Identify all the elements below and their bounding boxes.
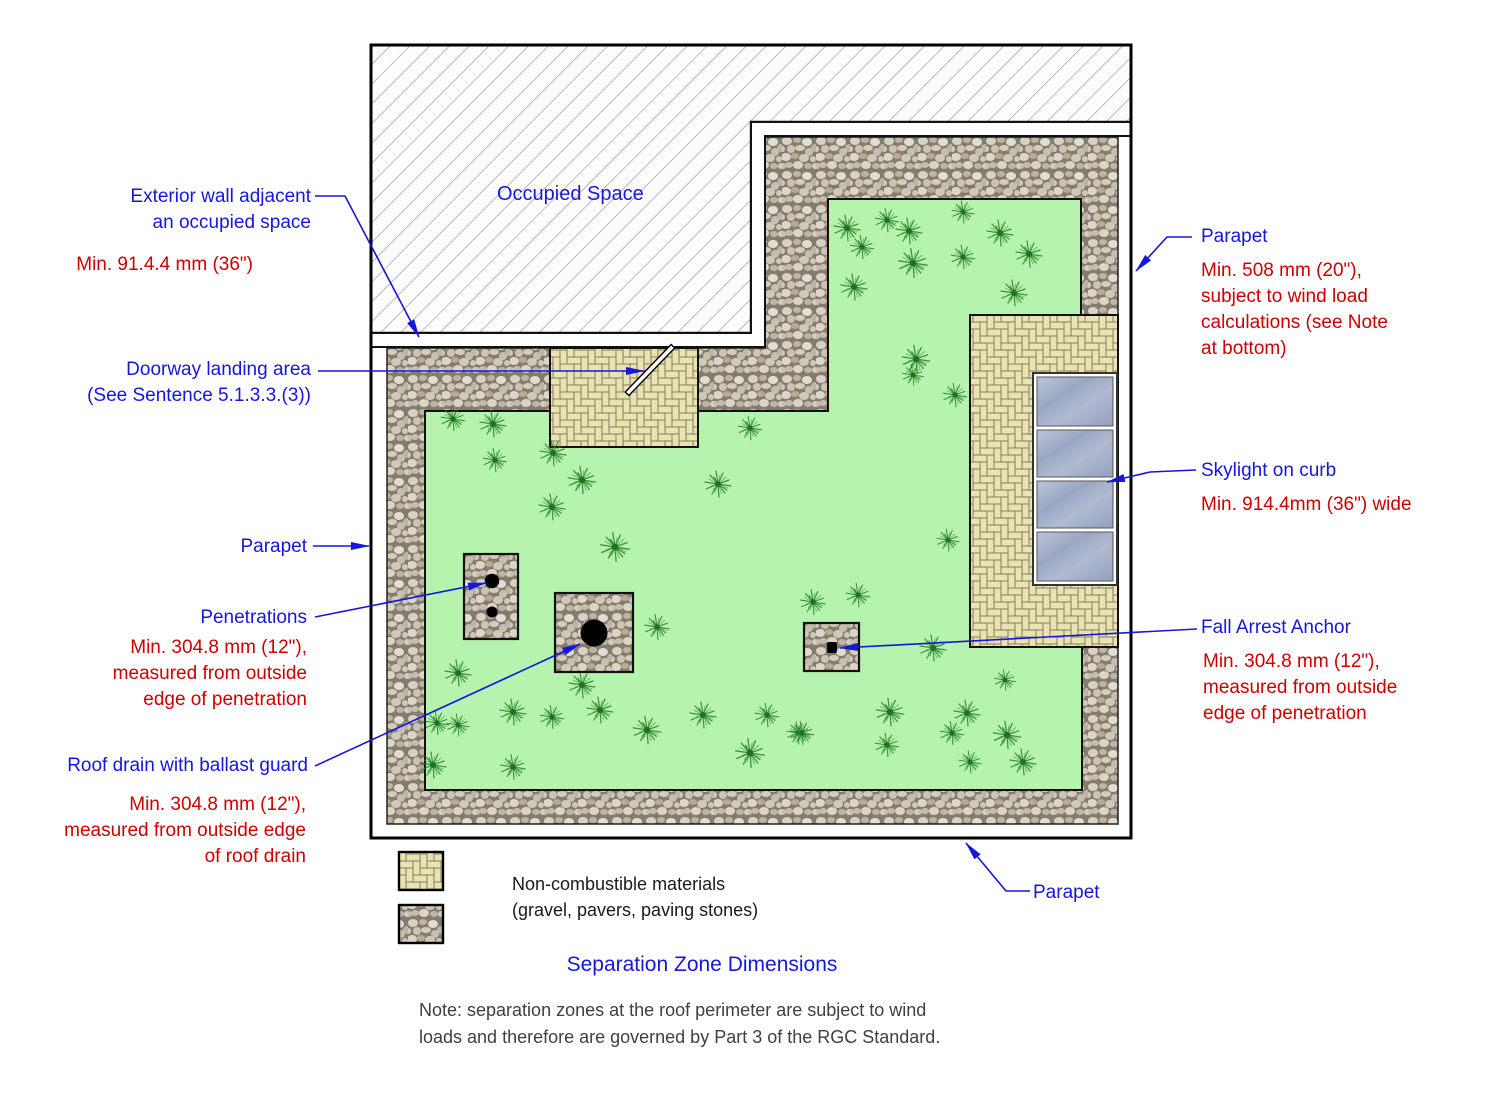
dim-fall-arrest-anchor: Min. 304.8 mm (12"), measured from outsi… [1203,649,1397,727]
roof-drain [581,620,608,647]
leader-parapet-bottom [966,843,1030,891]
diagram-title: Separation Zone Dimensions [402,952,1002,978]
skylight-pane [1037,481,1113,528]
skylight [1033,373,1117,585]
legend-line2: (gravel, pavers, paving stones) [512,900,758,920]
label-penetrations: Penetrations [200,605,307,631]
label-skylight: Skylight on curb [1201,458,1336,484]
roof-drain-box [555,593,633,672]
legend-text: Non-combustible materials(gravel, pavers… [512,871,758,923]
dim-exterior-wall: Min. 91.4.4 mm (36") [76,252,253,278]
label-parapet-right: Parapet [1201,224,1268,250]
legend-paver-swatch [399,852,443,890]
separation-zone-diagram: Exterior wall adjacent an occupied space… [0,0,1500,1102]
skylight-pane [1037,430,1113,477]
dim-penetrations: Min. 304.8 mm (12"), measured from outsi… [113,635,307,713]
skylight-pane [1037,377,1113,426]
legend-gravel-swatch [399,905,443,943]
penetration-pipe-small [487,607,498,618]
leader-parapet-right [1136,237,1192,271]
legend-line1: Non-combustible materials [512,874,725,894]
roof-plan-drawing [0,0,1500,1102]
dim-roof-drain: Min. 304.8 mm (12"), measured from outsi… [64,792,306,870]
penetration-pipe-large [485,574,499,588]
label-parapet-left: Parapet [240,534,307,560]
label-parapet-bottom: Parapet [1033,880,1100,906]
dim-parapet-right: Min. 508 mm (20"), subject to wind load … [1201,258,1388,362]
label-doorway-landing: Doorway landing area (See Sentence 5.1.3… [87,357,311,409]
occupied-space-label: Occupied Space [497,181,644,207]
skylight-pane [1037,532,1113,581]
label-fall-arrest-anchor: Fall Arrest Anchor [1201,615,1351,641]
doorway-landing-pavers [550,348,698,447]
penetration-box [464,554,518,639]
dim-skylight: Min. 914.4mm (36") wide [1201,492,1412,518]
note-text: Note: separation zones at the roof perim… [419,997,940,1051]
label-exterior-wall: Exterior wall adjacent an occupied space [130,184,311,236]
fall-arrest-anchor [827,642,837,653]
label-roof-drain: Roof drain with ballast guard [67,753,308,779]
